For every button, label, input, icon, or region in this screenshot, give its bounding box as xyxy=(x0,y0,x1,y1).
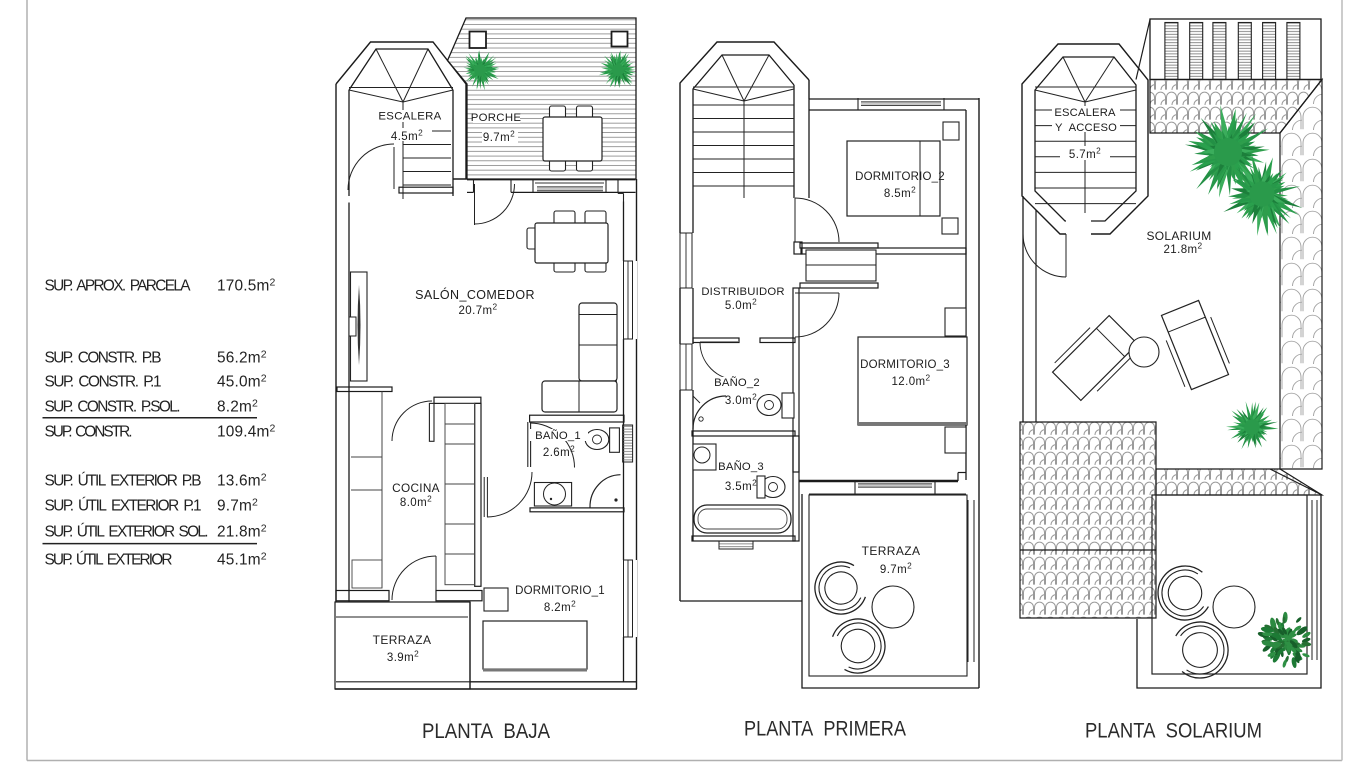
svg-text:170.5m2: 170.5m2 xyxy=(217,277,276,295)
svg-text:SUP. ÚTIL EXTERIOR P.1: SUP. ÚTIL EXTERIOR P.1 xyxy=(45,498,202,515)
svg-text:TERRAZA: TERRAZA xyxy=(373,633,432,647)
svg-text:21.8m2: 21.8m2 xyxy=(217,523,267,541)
svg-text:BAÑO_2: BAÑO_2 xyxy=(714,376,760,389)
svg-text:BAÑO_3: BAÑO_3 xyxy=(718,460,764,473)
svg-text:20.7m2: 20.7m2 xyxy=(459,303,498,318)
svg-text:SALÓN_COMEDOR: SALÓN_COMEDOR xyxy=(415,287,535,302)
svg-text:ESCALERA: ESCALERA xyxy=(1054,107,1116,119)
svg-text:SUP. CONSTR.: SUP. CONSTR. xyxy=(45,424,133,441)
svg-text:DORMITORIO_1: DORMITORIO_1 xyxy=(515,585,605,597)
svg-text:BAÑO_1: BAÑO_1 xyxy=(535,429,581,442)
svg-text:9.7m2: 9.7m2 xyxy=(217,497,258,515)
svg-text:12.0m2: 12.0m2 xyxy=(892,374,931,389)
svg-text:SUP. ÚTIL EXTERIOR SOL.: SUP. ÚTIL EXTERIOR SOL. xyxy=(45,524,209,541)
svg-text:PORCHE: PORCHE xyxy=(471,112,522,124)
svg-text:DORMITORIO_2: DORMITORIO_2 xyxy=(855,171,945,183)
svg-text:21.8m2: 21.8m2 xyxy=(1164,242,1203,257)
svg-text:8.2m2: 8.2m2 xyxy=(217,398,258,416)
svg-text:SUP. CONSTR. P.B: SUP. CONSTR. P.B xyxy=(45,350,162,367)
svg-text:SUP. ÚTIL EXTERIOR: SUP. ÚTIL EXTERIOR xyxy=(45,552,173,569)
svg-text:TERRAZA: TERRAZA xyxy=(862,544,921,558)
svg-text:DISTRIBUIDOR: DISTRIBUIDOR xyxy=(701,286,784,298)
svg-text:COCINA: COCINA xyxy=(392,481,440,495)
svg-text:DORMITORIO_3: DORMITORIO_3 xyxy=(860,359,950,371)
svg-text:Y ACCESO: Y ACCESO xyxy=(1055,122,1117,134)
svg-text:PLANTA PRIMERA: PLANTA PRIMERA xyxy=(744,718,906,741)
svg-text:SUP. APROX. PARCELA: SUP. APROX. PARCELA xyxy=(45,278,192,295)
svg-text:13.6m2: 13.6m2 xyxy=(217,472,267,490)
svg-text:SUP. CONSTR. P.1: SUP. CONSTR. P.1 xyxy=(45,374,162,391)
svg-text:45.0m2: 45.0m2 xyxy=(217,373,267,391)
svg-text:SUP. CONSTR. P.SOL.: SUP. CONSTR. P.SOL. xyxy=(45,399,181,416)
svg-text:PLANTA BAJA: PLANTA BAJA xyxy=(422,720,550,743)
svg-text:PLANTA SOLARIUM: PLANTA SOLARIUM xyxy=(1085,720,1262,743)
svg-text:56.2m2: 56.2m2 xyxy=(217,349,267,367)
svg-text:45.1m2: 45.1m2 xyxy=(217,551,267,569)
svg-text:SUP. ÚTIL EXTERIOR P.B: SUP. ÚTIL EXTERIOR P.B xyxy=(45,473,202,490)
svg-text:ESCALERA: ESCALERA xyxy=(378,111,441,123)
svg-text:109.4m2: 109.4m2 xyxy=(217,423,276,441)
